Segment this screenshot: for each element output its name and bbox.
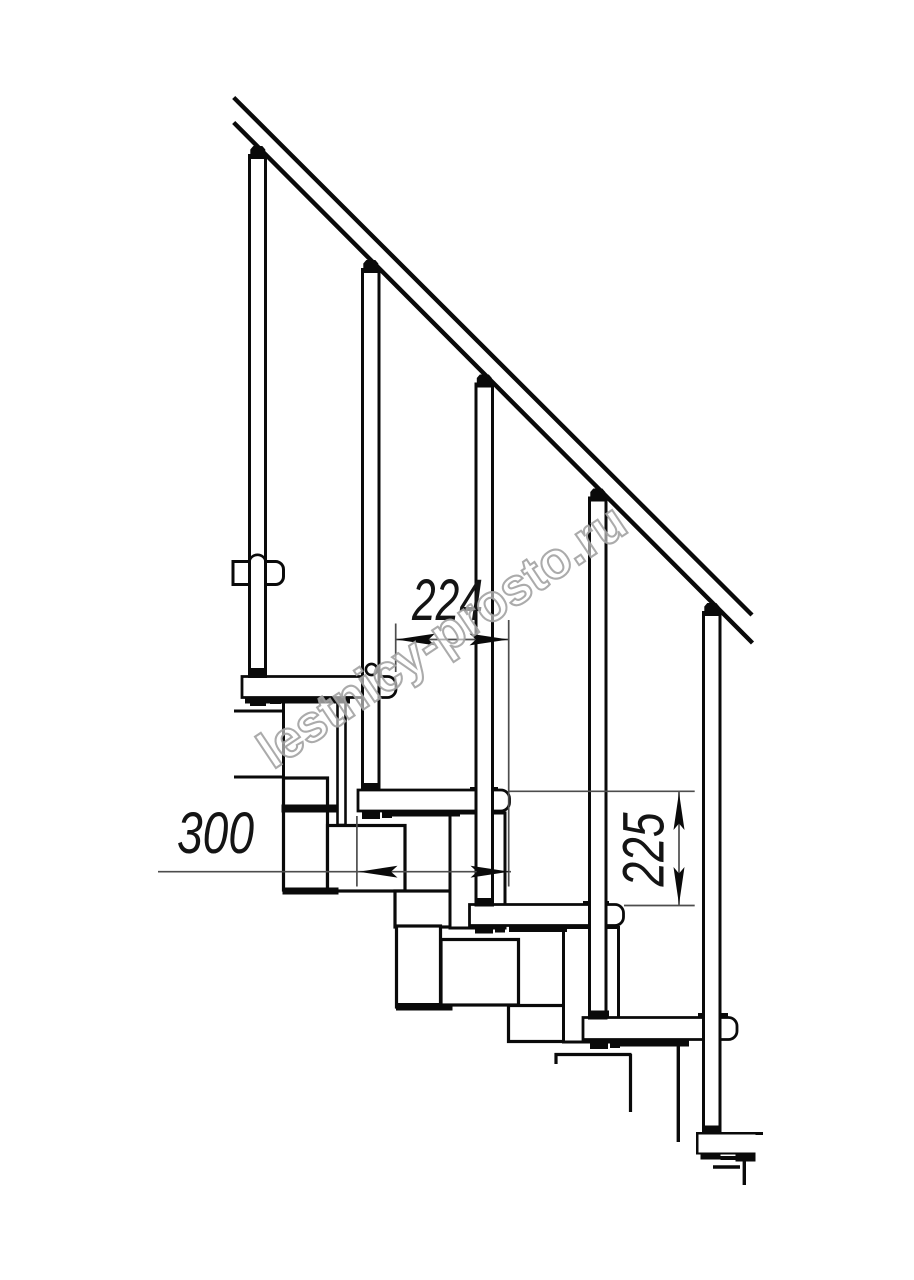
- svg-text:300: 300: [177, 801, 254, 866]
- svg-text:225: 225: [612, 812, 677, 887]
